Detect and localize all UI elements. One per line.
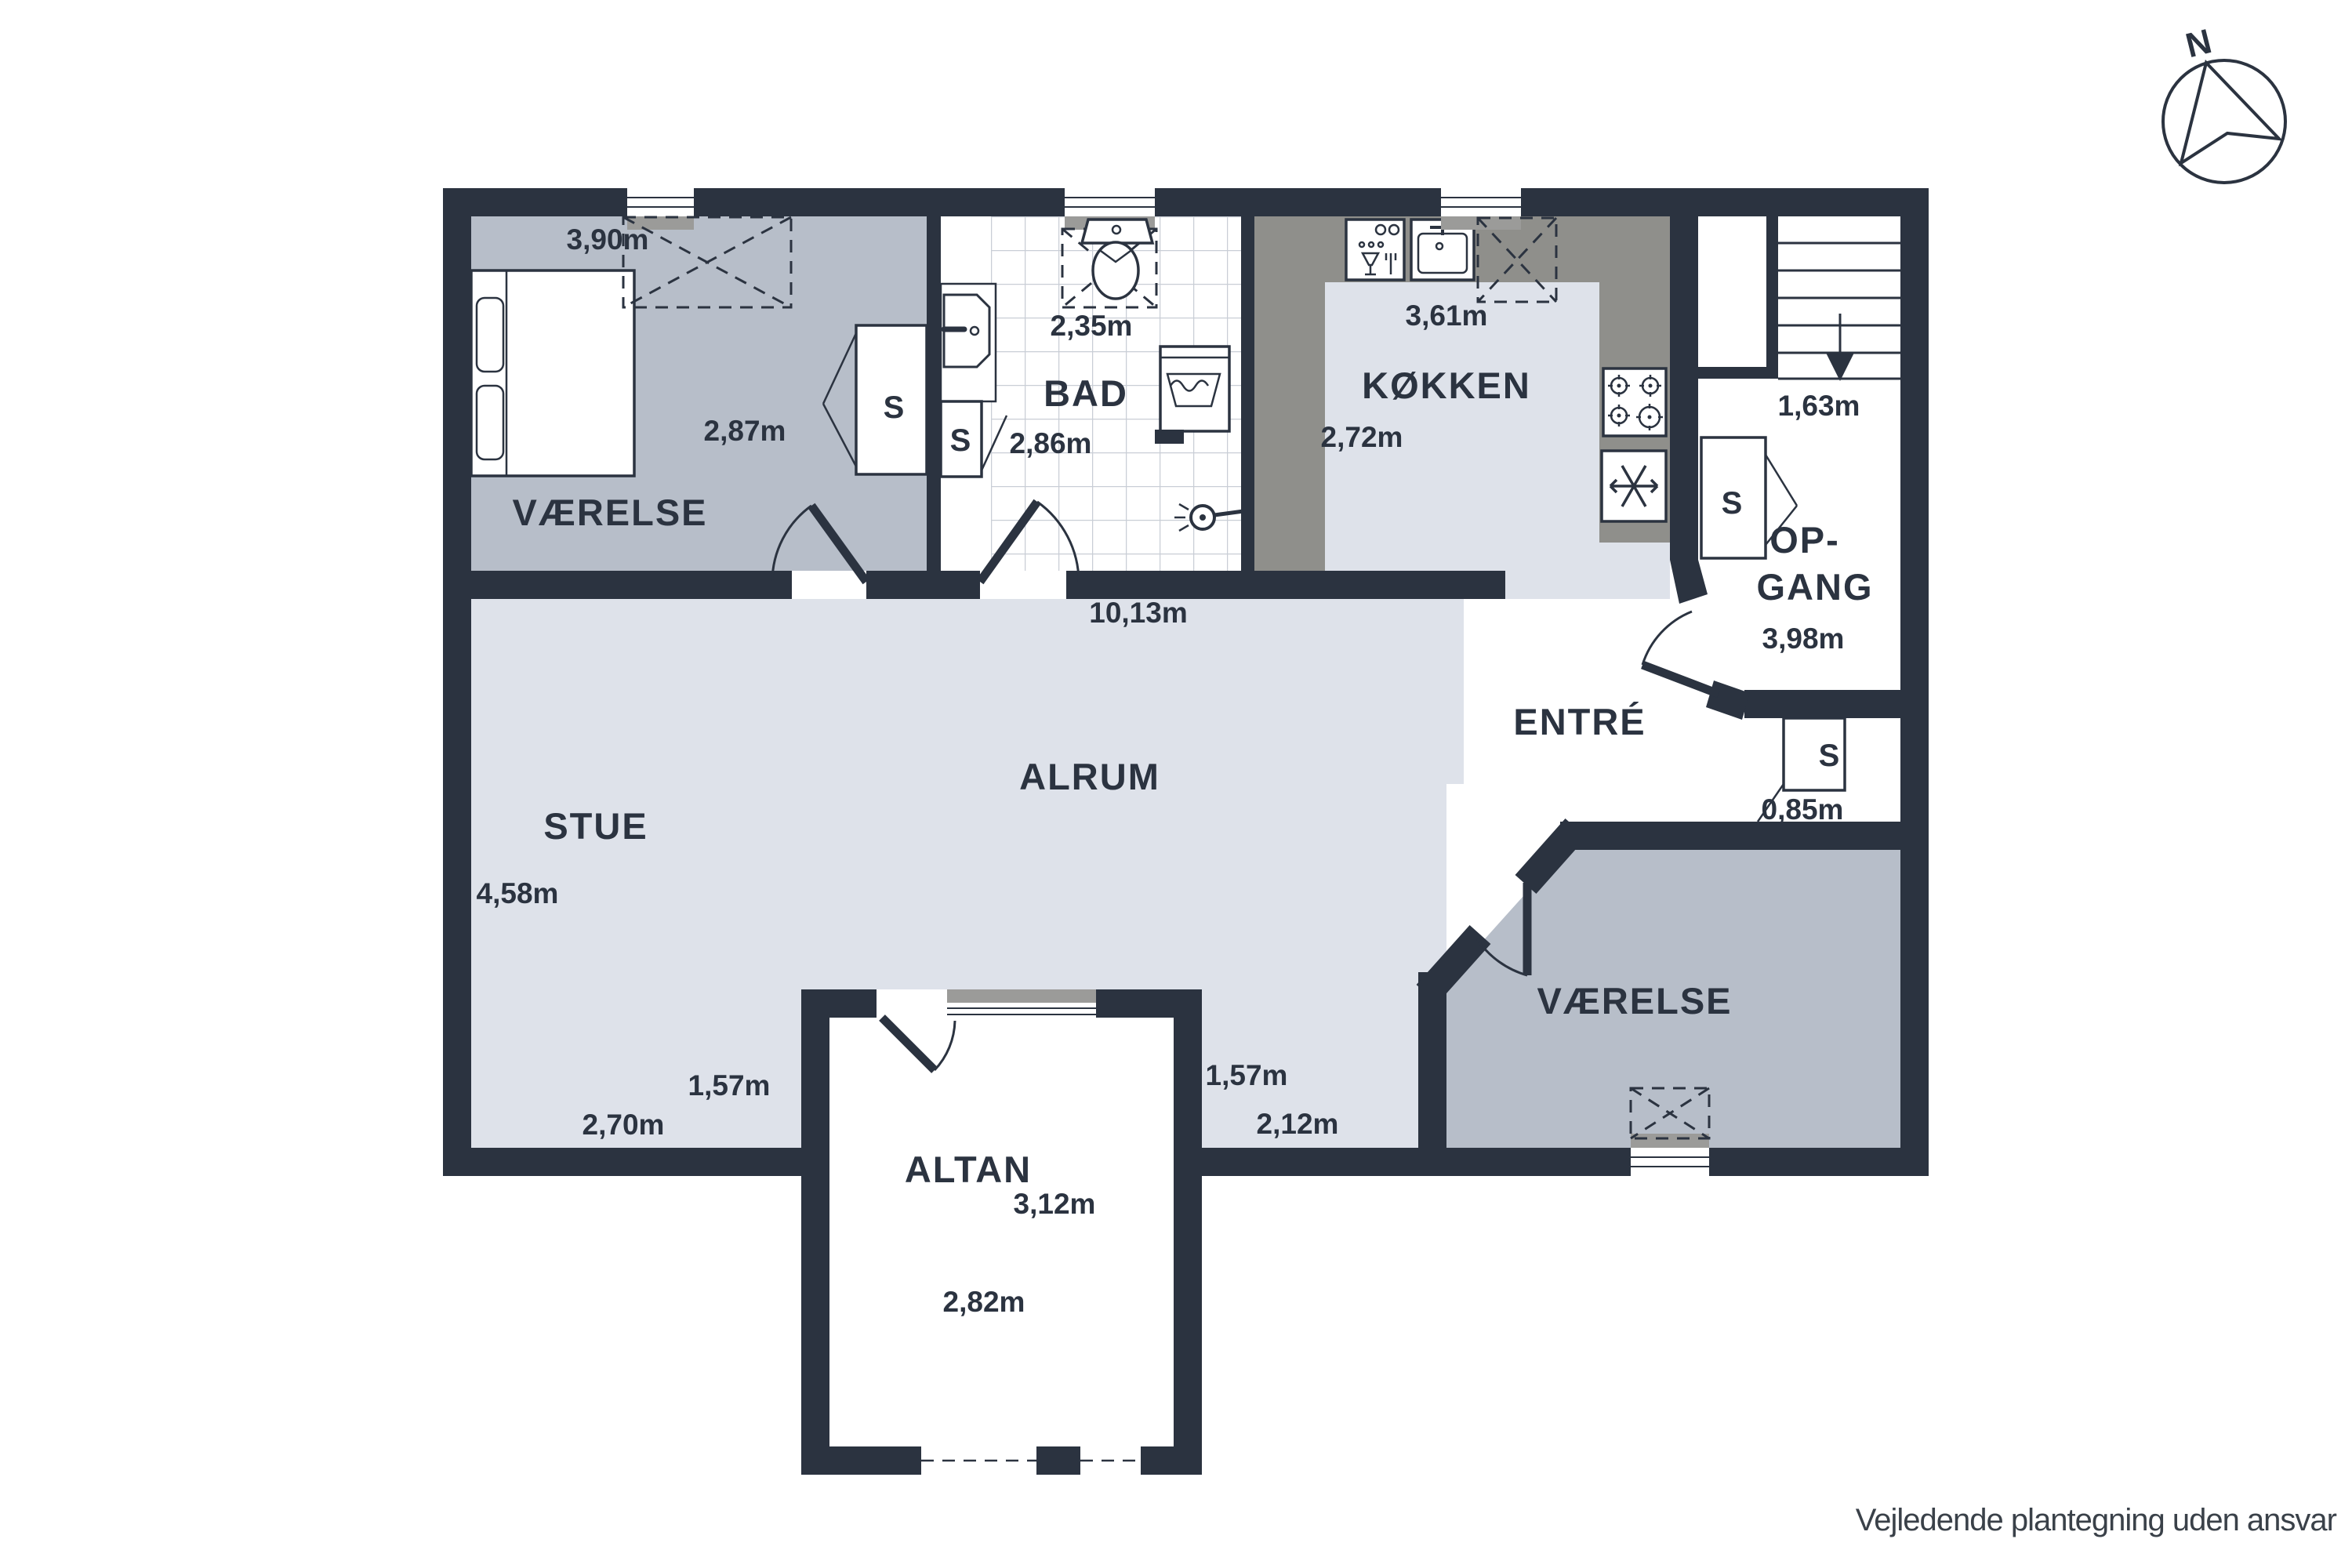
dim-stue-opening: 1,57m (688, 1069, 771, 1102)
floor-plan: 3,90m 2,87m VÆRELSE S 2,35m BAD 2,86m S … (0, 0, 2352, 1568)
wall-stub-washer (1155, 430, 1184, 444)
double-bed-icon (471, 270, 634, 476)
dim-opgang-stairs: 1,63m (1778, 390, 1860, 422)
wall-middle-3 (1066, 571, 1505, 599)
window-vaerelse-se (1631, 1134, 1709, 1176)
label-entre: ENTRÉ (1513, 701, 1646, 742)
wall-koekken-east (1670, 216, 1698, 560)
room-altan-floor (829, 1018, 1174, 1446)
label-opgang-line2: GANG (1757, 566, 1874, 608)
label-closet-opgang: S (1722, 486, 1743, 521)
dim-altan-width: 2,82m (943, 1286, 1025, 1318)
dim-alrum-opening: 1,57m (1206, 1059, 1288, 1091)
kitchen-counter-west (1254, 216, 1325, 571)
dim-bad-width: 2,35m (1051, 310, 1133, 342)
wall-middle-2 (866, 571, 980, 599)
wall-middle-1 (443, 571, 792, 599)
wall-outer-left (443, 188, 471, 1176)
dim-opgang-depth: 3,98m (1762, 622, 1845, 655)
washing-machine-icon (1160, 347, 1229, 431)
wall-outer-bottom-left (443, 1148, 801, 1176)
dim-stue-bottom: 2,70m (583, 1109, 665, 1141)
dim-altan-depth: 3,12m (1014, 1188, 1096, 1220)
label-opgang-line1: OP- (1769, 519, 1840, 561)
label-altan: ALTAN (905, 1149, 1032, 1190)
label-alrum: ALRUM (1019, 756, 1160, 797)
stove-icon (1603, 368, 1666, 436)
label-bad: BAD (1044, 372, 1128, 414)
wall-altan-bottom-right (1141, 1446, 1202, 1475)
bathroom-sink-icon (941, 284, 996, 401)
dim-stue-depth: 4,58m (477, 877, 559, 909)
wall-vaerelse-bad (927, 216, 941, 571)
dim-entre-closet: 0,85m (1762, 793, 1844, 826)
dim-alrum-width: 10,13m (1089, 597, 1188, 629)
dim-vaerelse-nw-depth: 2,87m (704, 415, 786, 447)
dim-bad-depth: 2,86m (1010, 427, 1092, 459)
window-koekken (1441, 188, 1521, 230)
label-koekken: KØKKEN (1362, 365, 1531, 406)
wall-altan-top-left (801, 989, 877, 1018)
fridge-icon (1602, 451, 1666, 521)
wall-vaerelse-se-top (1560, 822, 1900, 850)
label-vaerelse-nw: VÆRELSE (512, 492, 707, 533)
dim-koekken-width: 3,61m (1406, 299, 1488, 332)
label-stue: STUE (543, 805, 648, 847)
dim-alrum-bottom: 2,12m (1257, 1108, 1339, 1140)
wall-altan-bottom-mid (1036, 1446, 1080, 1475)
wall-outer-bottom-right (1202, 1148, 1929, 1176)
disclaimer-text: Vejledende plantegning uden ansvar (1856, 1503, 2337, 1537)
label-vaerelse-se: VÆRELSE (1537, 980, 1732, 1022)
dim-vaerelse-nw-width: 3,90m (567, 223, 649, 256)
label-closet-nw: S (884, 390, 905, 425)
dishwasher-icon (1346, 220, 1404, 280)
dim-koekken-depth: 2,72m (1321, 421, 1403, 453)
wall-outer-right (1900, 188, 1929, 1176)
compass-north-label: N (2182, 22, 2216, 65)
wall-shaft-bottom (1686, 367, 1778, 379)
wall-bad-east (1241, 216, 1254, 571)
wall-shaft-right (1766, 216, 1778, 379)
wall-entre-opgang (1744, 690, 1900, 718)
wall-altan-right (1174, 989, 1202, 1475)
wall-altan-bottom-left (801, 1446, 921, 1475)
compass: N (2163, 22, 2285, 183)
label-closet-bad: S (950, 423, 971, 458)
window-altan (947, 989, 1096, 1019)
label-closet-entre: S (1819, 739, 1840, 773)
compass-north-arrow-icon (2181, 63, 2279, 163)
wall-altan-top-right (1096, 989, 1202, 1018)
wall-altan-left (801, 989, 829, 1475)
